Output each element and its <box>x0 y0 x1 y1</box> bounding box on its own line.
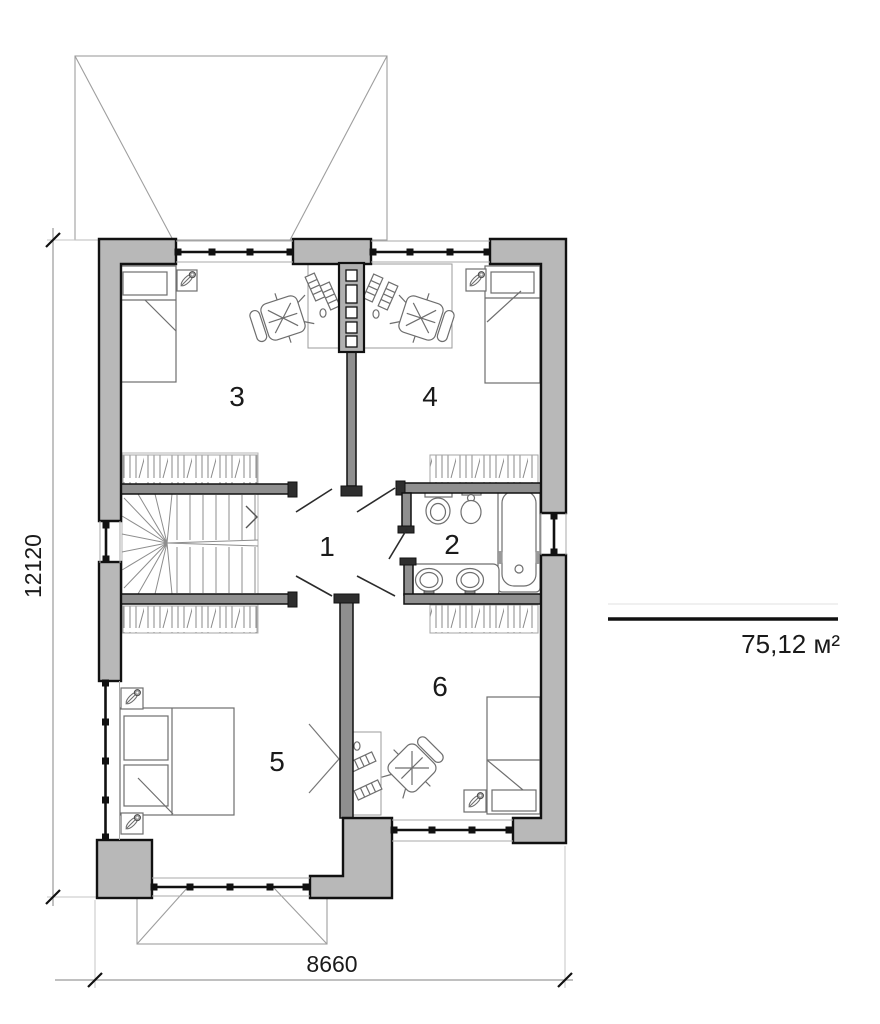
window-icon <box>391 820 514 841</box>
duct-cell <box>346 307 357 318</box>
door-jamb <box>288 482 297 497</box>
doors <box>296 488 407 596</box>
mouse-icon <box>354 742 360 750</box>
wall-room4-bath <box>398 483 541 493</box>
mouse-icon <box>320 309 326 317</box>
double-sink-icon <box>407 564 499 598</box>
wall-room3-hall <box>121 484 290 494</box>
room-5-label: 5 <box>269 746 285 777</box>
wall-hall-room4 <box>347 351 356 486</box>
wardrobe-hatch-icon <box>430 455 538 483</box>
roof-outline-top <box>75 56 387 240</box>
wall-bath-left-lower <box>404 561 413 595</box>
bathroom-fixtures <box>407 486 540 598</box>
room-3-label: 3 <box>229 381 245 412</box>
duct-cell <box>346 336 357 347</box>
window-icon <box>370 241 491 262</box>
door-jamb <box>400 558 416 565</box>
wardrobe-hatch-icon <box>123 606 257 633</box>
total-area-label: 75,12 м² <box>741 629 840 659</box>
wardrobe-hatch-icon <box>430 605 538 633</box>
wardrobe-hatch-icon <box>123 455 257 484</box>
duct-cell <box>346 270 357 281</box>
floor-plan-drawing: 12120 8660 75,12 м² <box>0 0 880 1024</box>
window-icon <box>541 513 566 556</box>
room-2-label: 2 <box>444 529 460 560</box>
room-4-furniture <box>363 264 540 383</box>
bathtub-icon <box>498 486 540 592</box>
nightstand-icon <box>466 269 486 291</box>
dimension-horizontal-label: 8660 <box>306 951 357 977</box>
room-6-furniture <box>348 697 540 815</box>
room-3-furniture <box>118 264 340 382</box>
door-jamb <box>341 486 362 496</box>
area-callout: 75,12 м² <box>608 604 840 659</box>
window-icon <box>102 680 120 841</box>
wall-top-middle-pier <box>293 239 371 264</box>
door-jamb <box>288 592 297 607</box>
room-6-label: 6 <box>432 671 448 702</box>
bed-icon <box>485 266 540 383</box>
office-chair-icon <box>245 285 317 353</box>
door-swing-icon <box>357 488 395 512</box>
bed-icon <box>118 266 176 382</box>
dimension-left: 12120 <box>20 228 99 906</box>
wall-hall-room5 <box>121 594 290 604</box>
room-1-label: 1 <box>319 531 335 562</box>
chimney-duct-block <box>339 263 364 352</box>
nightstand-icon <box>121 688 143 709</box>
duct-cell <box>346 285 357 303</box>
door-swing-icon <box>296 576 332 596</box>
door-swing-icon <box>357 576 395 596</box>
window-icon <box>175 241 294 262</box>
slope-mark <box>309 724 339 793</box>
plant-box-icon <box>464 790 486 812</box>
floor-plan-page: 12120 8660 75,12 м² <box>0 0 880 1024</box>
bed-icon <box>487 697 540 814</box>
nightstand-icon <box>121 813 143 834</box>
door-swing-icon <box>296 489 332 512</box>
wall-corner-bottom-left <box>97 840 152 898</box>
room-5-furniture <box>120 688 339 834</box>
nightstand-icon <box>177 270 197 291</box>
wall-bath-left-upper <box>402 493 411 528</box>
window-icon <box>100 521 120 563</box>
window-icon <box>151 878 311 896</box>
duct-cell <box>346 322 357 333</box>
door-jamb <box>334 594 359 603</box>
wall-bath-room6 <box>404 594 541 604</box>
room-4-label: 4 <box>422 381 438 412</box>
wall-room5-room6 <box>340 602 353 818</box>
office-chair-icon <box>374 728 452 806</box>
wall-bottom-step <box>310 818 392 898</box>
bed-icon <box>120 708 234 815</box>
mouse-icon <box>373 310 379 318</box>
wall-left-mid <box>99 562 121 681</box>
dimension-vertical-label: 12120 <box>20 534 46 598</box>
